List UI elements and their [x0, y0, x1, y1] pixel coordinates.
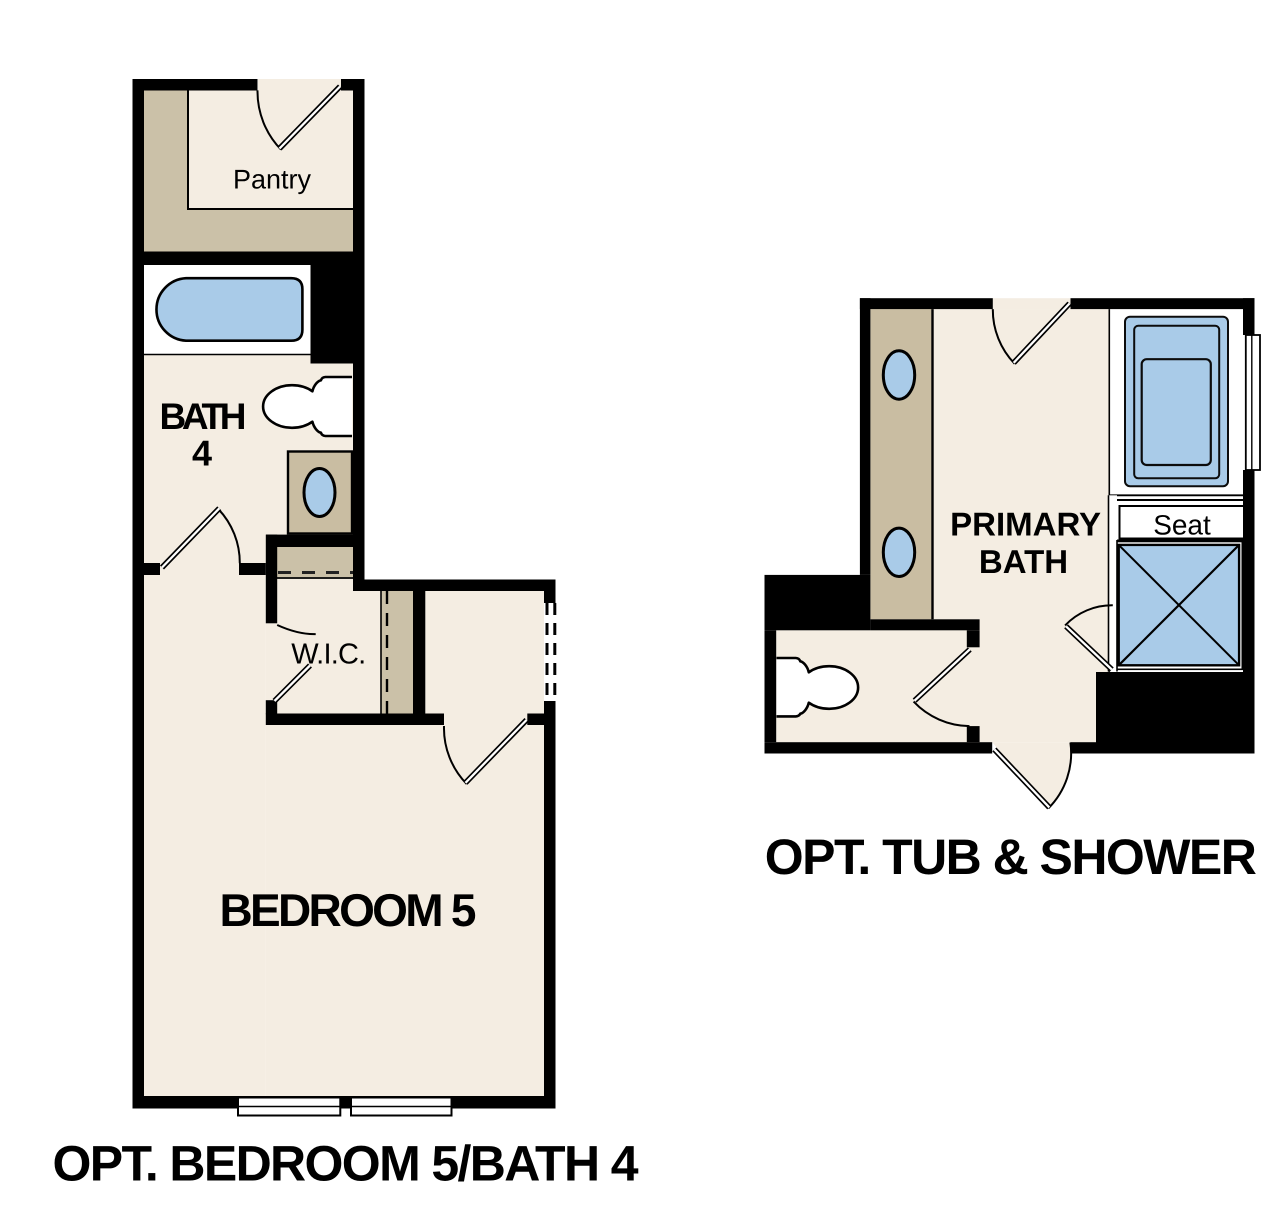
- svg-text:W.I.C.: W.I.C.: [291, 638, 366, 670]
- svg-text:BATH: BATH: [979, 543, 1068, 580]
- svg-text:Pantry: Pantry: [233, 165, 312, 195]
- svg-text:BATH: BATH: [160, 396, 247, 437]
- svg-text:BEDROOM 5: BEDROOM 5: [220, 884, 477, 936]
- svg-text:OPT. TUB & SHOWER: OPT. TUB & SHOWER: [765, 829, 1257, 885]
- svg-text:PRIMARY: PRIMARY: [950, 506, 1101, 543]
- svg-text:OPT. BEDROOM 5/BATH 4: OPT. BEDROOM 5/BATH 4: [53, 1136, 639, 1192]
- svg-text:Seat: Seat: [1153, 510, 1211, 541]
- svg-text:4: 4: [192, 432, 212, 473]
